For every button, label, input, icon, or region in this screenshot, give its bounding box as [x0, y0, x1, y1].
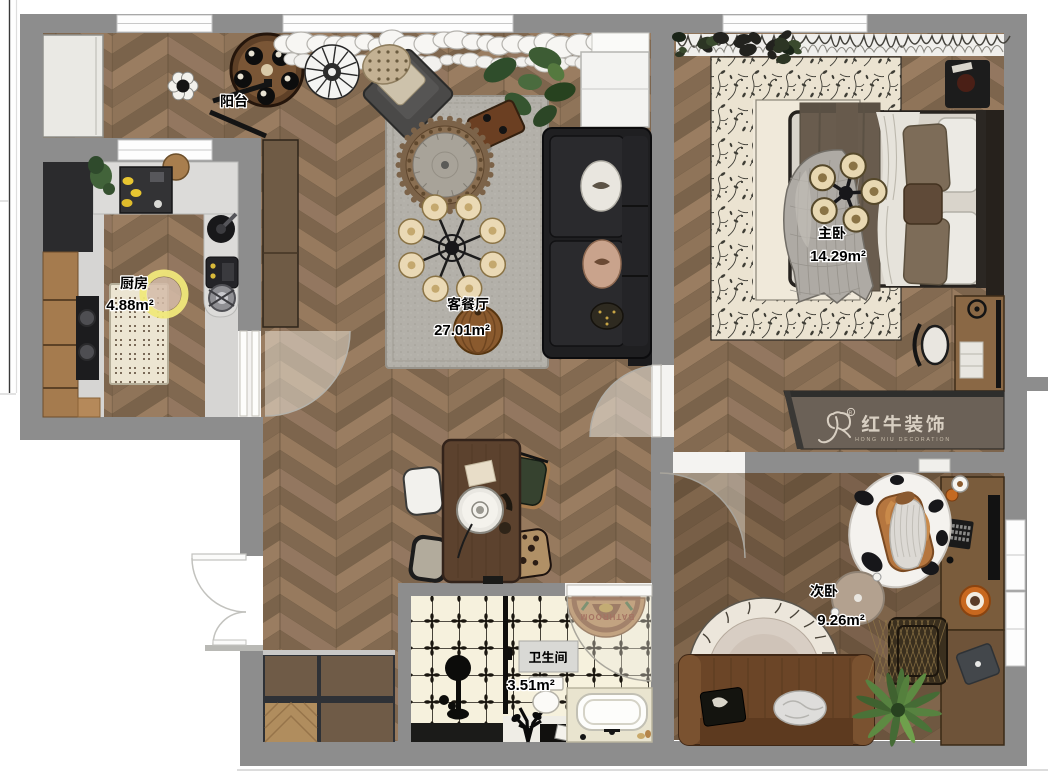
svg-text:27.01m²: 27.01m²	[434, 322, 490, 339]
svg-text:9.26m²: 9.26m²	[817, 612, 865, 629]
svg-text:HONG NIU DECORATION: HONG NIU DECORATION	[855, 437, 951, 443]
svg-text:4.88m²: 4.88m²	[106, 297, 154, 314]
svg-text:3.51m²: 3.51m²	[507, 677, 555, 694]
svg-text:R: R	[849, 410, 853, 416]
svg-text:14.29m²: 14.29m²	[810, 248, 866, 265]
